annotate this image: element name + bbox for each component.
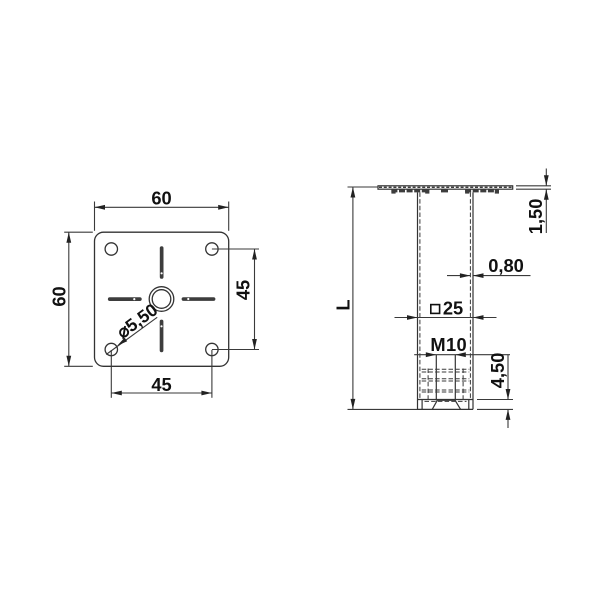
svg-text:60: 60 (49, 286, 70, 306)
svg-text:M10: M10 (430, 334, 467, 355)
svg-text:L: L (333, 299, 354, 310)
svg-text:45: 45 (151, 374, 171, 395)
svg-text:45: 45 (233, 280, 254, 300)
svg-text:60: 60 (151, 187, 171, 208)
svg-text:4,50: 4,50 (487, 353, 508, 389)
svg-text:25: 25 (443, 298, 463, 319)
svg-text:0,80: 0,80 (488, 255, 524, 276)
svg-text:1,50: 1,50 (525, 199, 546, 235)
